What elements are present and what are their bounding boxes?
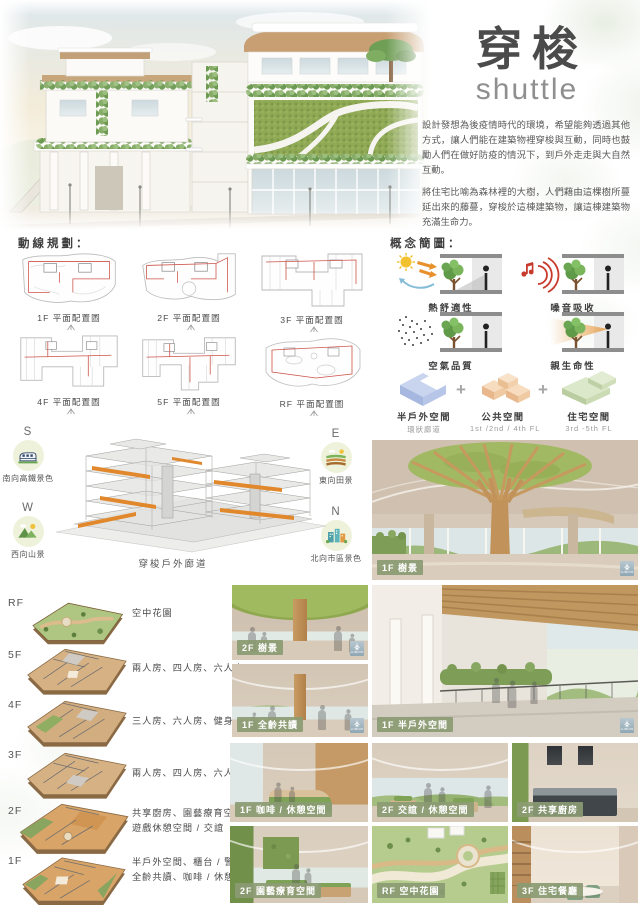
tree-trunk-column [293,599,307,641]
range-hood [547,746,562,765]
mountain-icon [13,516,44,547]
north-arrow-icon [17,324,125,331]
floor-plan-3f: 3F 平面配置圖 [256,250,368,333]
lumion-watermark-icon: LUMION [350,641,364,656]
floor-plan-1f-drawing [15,250,123,310]
concept-cell-noise: 噪音吸收 [516,252,630,314]
planter-box [318,883,351,897]
render-label: 1F 樹景 [377,560,423,575]
floor-plan-5f-drawing [135,334,243,394]
5f-floor-plate [14,641,132,697]
floor-plan-rf-drawing [256,334,368,396]
floor-plan-2f: 2F 平面配置圖 [135,250,243,331]
render-label: 1F 全齡共讀 [237,717,303,732]
render-label: 1F 咖啡 / 休憩空間 [235,802,332,817]
residential-massing-shape [556,366,622,408]
render-1f-semi-outdoor: 1F 半戶外空間 LUMION [372,585,638,737]
north-arrow-icon [258,326,370,333]
tree-icon [564,318,586,349]
north-arrow-icon [258,410,370,417]
render-1f-reading: 1F 全齡共讀 LUMION [232,664,368,737]
intro-text: 設計發想為後疫情時代的環境，希望能夠透過其他方式，讓人們能在建築物裡穿梭與互動，… [422,118,630,237]
concept-cell-biophilia: 親生命性 [516,310,630,372]
ceiling-arc [512,826,638,853]
tree-column-interior [372,440,638,580]
2f-floor-plate [8,797,132,855]
render-3f-dining: 3F 住宅餐廳 [512,826,638,903]
intro-paragraph-2: 將住宅比喻為森林裡的大樹，人們藉由這棵樹所蔓延出來的藤蔓，穿梭於這棟建築物，讓這… [422,185,630,230]
particles-icon [398,316,433,346]
floor-plan-rf: RF 平面配置圖 [256,334,368,417]
circulation-heading: 動線規劃： [18,235,91,251]
massing-label-residential: 住宅空間 [554,409,624,423]
massing-label-public: 公共空間 [470,409,536,423]
music-note-icon [521,262,533,277]
thermal-comfort-diagram [394,252,508,298]
biophilia-diagram [516,310,630,356]
floor-desc-rf: 空中花園 [132,606,173,621]
ceiling-arc [230,743,368,771]
render-label: RF 空中花園 [377,883,445,898]
4f-floor-plate [14,693,132,749]
render-label: 2F 園藝療育空間 [235,883,321,898]
plan-label-rf: RF 平面配置圖 [256,398,368,417]
render-2f-therapy: 2F 園藝療育空間 [230,826,368,903]
floor-plan-1f: 1F 平面配置圖 [15,250,123,331]
massing-sub-semi-outdoor: 環狀廊道 [392,424,456,435]
tree-icon [442,260,464,291]
structural-axon-drawing [44,432,334,558]
semi-outdoor-walkway [372,585,638,737]
person-silhouette [318,710,326,730]
floor-plan-3f-drawing [256,250,368,312]
building-exterior-illustration [0,0,430,235]
render-2f-kitchen: 2F 共享廚房 [512,743,638,822]
axon-caption: 穿梭戶外廊道 [108,556,238,570]
render-art [372,440,638,580]
massing-sub-residential: 3rd -5th FL [554,424,624,433]
concept-cell-air: 空氣品質 [394,310,508,372]
plan-label-1f: 1F 平面配置圖 [15,312,123,331]
floor-plan-4f: 4F 平面配置圖 [15,334,123,415]
person-silhouette [508,686,517,708]
render-1f-tree-view: 1F 樹景 LUMION [372,440,638,580]
render-label: 2F 共享廚房 [517,802,583,817]
semi-outdoor-massing-shape [394,366,454,408]
wood-shelf [512,832,531,886]
render-1f-cafe: 1F 咖啡 / 休憩空間 [230,743,368,822]
train-icon [13,440,44,471]
plan-label-2f: 2F 平面配置圖 [135,312,243,331]
render-label: 2F 交誼 / 休憩空間 [377,802,474,817]
floor-desc-3f: 兩人房、四人房、六人房 [132,766,244,781]
north-arrow-icon [17,408,125,415]
building-exterior-render [0,0,430,235]
3f-floor-plate [14,745,132,801]
public-space-massing-shape [472,366,534,408]
render-2f-lounge: 2F 交誼 / 休憩空間 [372,743,508,822]
floor-plan-4f-drawing [15,334,123,394]
floor-plan-5f: 5F 平面配置圖 [135,334,243,415]
plan-label-4f: 4F 平面配置圖 [15,396,123,415]
massing-sub-public: 1st /2nd / 4th FL [470,424,536,433]
render-label: 3F 住宅餐廳 [517,883,583,898]
ceiling-arc [230,826,368,853]
poster-subtitle: shuttle [420,73,634,107]
render-rf-sky-garden: RF 空中花園 [372,826,508,903]
noise-absorption-diagram [516,252,630,298]
floor-desc-2f: 共享廚房、園藝療育空間 遊戲休憩空間 / 交誼 [132,806,244,836]
lumion-watermark-icon: LUMION [350,718,364,733]
plus-sign: + [538,380,548,400]
intro-paragraph-1: 設計發想為後疫情時代的環境，希望能夠透過其他方式，讓人們能在建築物裡穿梭與互動，… [422,118,630,178]
north-arrow-icon [137,324,245,331]
title-block: 穿梭 shuttle [420,24,634,107]
massing-residential: 住宅空間 3rd -5th FL [554,366,624,433]
render-label: 2F 樹景 [237,640,283,655]
person-silhouette [530,686,537,704]
plan-label-3f: 3F 平面配置圖 [256,314,368,333]
concept-heading: 概念簡圖： [390,235,463,251]
range-hood [578,746,593,765]
floor-plan-2f-drawing [135,250,243,310]
plus-sign: + [456,380,466,400]
concept-cell-thermal: 熱舒適性 [394,252,508,314]
lumion-watermark-icon: LUMION [620,561,634,576]
ceiling-arc [372,743,508,771]
massing-label-semi-outdoor: 半戶外空間 [392,409,456,423]
render-label: 1F 半戶外空間 [377,717,453,732]
poster-title: 穿梭 [420,24,634,75]
person-silhouette [484,790,491,808]
sound-wave-icon [538,258,559,292]
north-arrow-icon [137,408,245,415]
floor-desc-4f: 三人房、六人房、健身房 [132,714,244,729]
person-silhouette [334,631,342,651]
presentation-board: 穿梭 shuttle 設計發想為後疫情時代的環境，希望能夠透過其他方式，讓人們能… [0,0,640,906]
floor-desc-5f: 兩人房、四人房、六人房 [132,661,244,676]
lumion-watermark-icon: LUMION [620,718,634,733]
rf-floor-plate [18,593,130,647]
render-2f-tree-view: 2F 樹景 LUMION [232,585,368,660]
1f-floor-plate [8,851,132,906]
person-silhouette [492,683,500,703]
render-art [372,585,638,737]
wind-arrow-icon [399,278,434,288]
massing-public: 公共空間 1st /2nd / 4th FL [470,366,536,433]
tree-icon [442,318,464,349]
interior-column [294,674,306,720]
air-quality-diagram [394,310,508,356]
massing-semi-outdoor: 半戶外空間 環狀廊道 [392,366,456,435]
sun-icon [397,253,415,271]
plan-label-5f: 5F 平面配置圖 [135,396,243,415]
heat-arrow-icon [417,261,437,278]
tree-icon [564,260,586,291]
